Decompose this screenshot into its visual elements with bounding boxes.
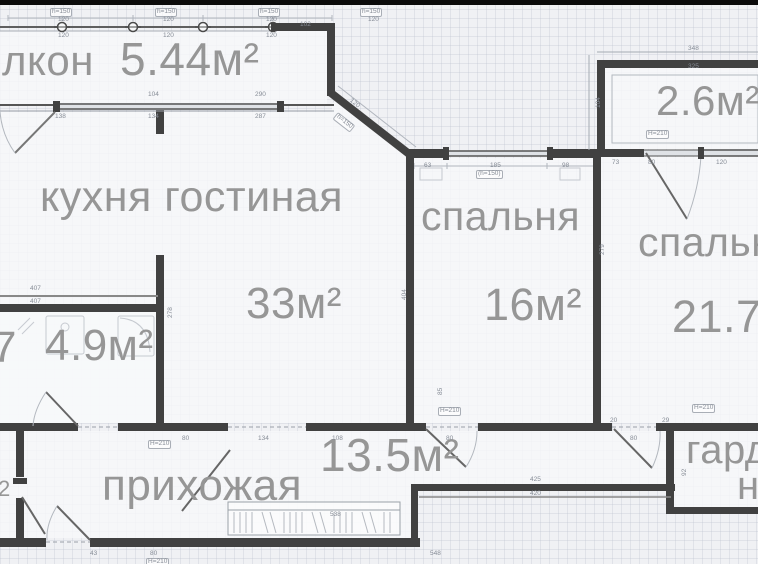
room-label-kitchen-name: кухня гостиная	[40, 176, 343, 219]
room-label-bedroom2-name: спальн	[638, 222, 758, 263]
room-label-hallway-name: прихожая	[102, 464, 302, 508]
room-label-bedroom2-area: 21.7	[672, 294, 758, 339]
room-label-hallway-area: 13.5м²	[320, 432, 459, 478]
room-label-partial-left-top: 7	[0, 326, 17, 370]
room-label-bedroom1-area: 16м²	[484, 282, 582, 327]
floorplan-canvas: лкон 5.44м² кухня гостиная 33м² 4.9м² сп…	[0, 0, 758, 564]
room-label-balcony1-area: 5.44м²	[120, 36, 259, 82]
room-label-bedroom1-name: спальня	[421, 196, 580, 237]
room-label-partial-left-bottom: 2	[0, 478, 11, 500]
room-label-kitchen-area: 33м²	[246, 282, 342, 326]
room-label-wardrobe-line2: н	[737, 466, 758, 506]
room-label-bathroom-area: 4.9м²	[45, 324, 154, 368]
room-label-balcony2-area: 2.6м²	[656, 80, 758, 122]
room-label-balcony1-name: лкон	[2, 40, 94, 82]
balcony-window-wall	[0, 23, 281, 32]
